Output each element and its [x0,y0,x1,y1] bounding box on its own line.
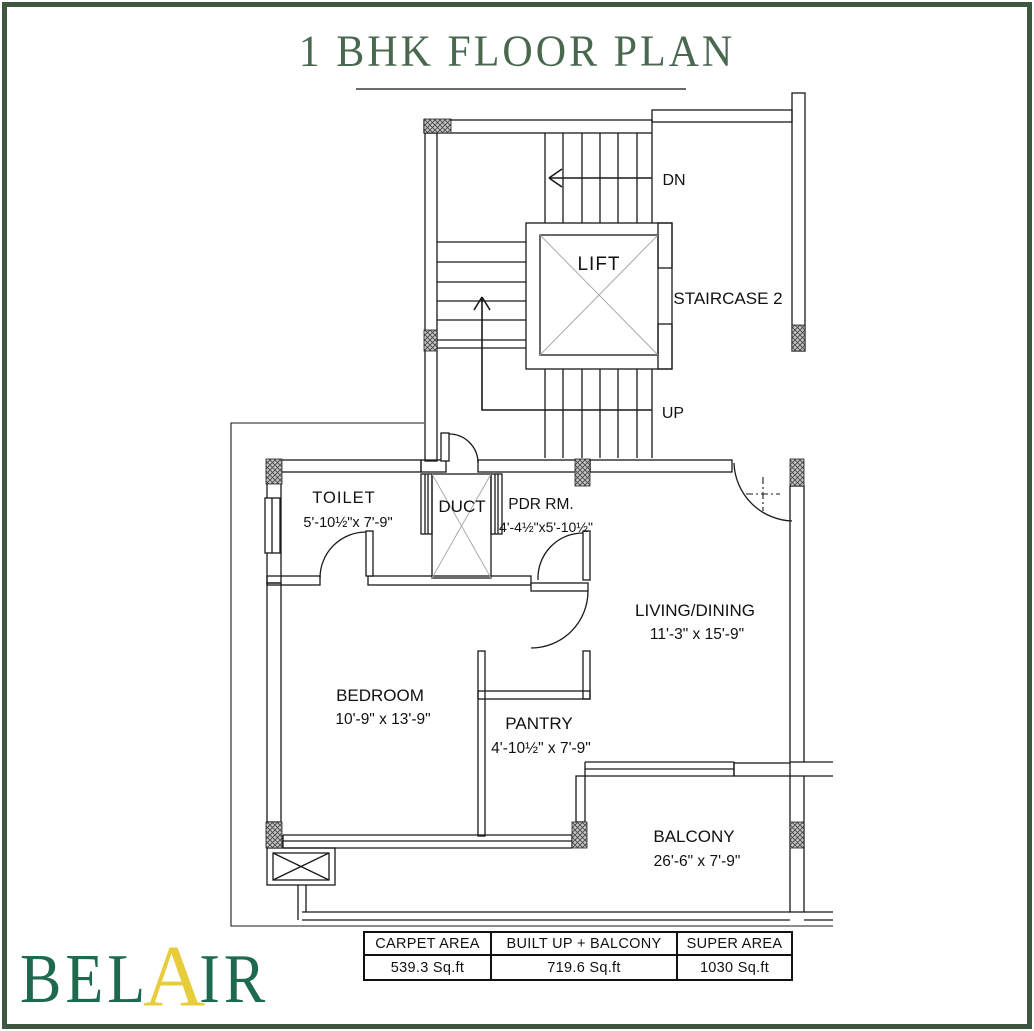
dim-bedroom: 10'-9" x 13'-9" [335,711,430,728]
label-pantry: PANTRY [505,714,572,733]
floor-plan-drawing: LIFT STAIRCASE 2 DN UP TOILET 5'-10½"x 7… [0,0,1034,1031]
dim-balcony: 26'-6" x 7'-9" [654,853,741,870]
dim-pantry: 4'-10½" x 7'-9" [491,740,591,757]
dim-toilet: 5'-10½"x 7'-9" [303,515,392,531]
label-toilet: TOILET [312,489,375,507]
logo-text-left: BEL [20,940,149,1020]
belair-logo: BEL A IR [20,925,269,1011]
door-centre-mark [746,477,780,511]
logo-accent-letter: A [143,925,205,1027]
label-lift: LIFT [577,254,620,275]
table-value-carpet-area: 539.3 Sq.ft [365,956,492,979]
label-pdr: PDR RM. [508,496,573,513]
area-summary-table: CARPET AREA BUILT UP + BALCONY SUPER ARE… [363,931,793,981]
label-dn: DN [662,172,685,189]
table-header-built-up: BUILT UP + BALCONY [492,933,678,956]
label-living: LIVING/DINING [635,601,755,620]
dim-pdr: 4'-4½"x5'-10½" [499,519,593,535]
table-value-built-up: 719.6 Sq.ft [492,956,678,979]
table-value-super-area: 1030 Sq.ft [678,956,791,979]
dim-living: 11'-3" x 15'-9" [650,626,744,643]
table-header-super-area: SUPER AREA [678,933,791,956]
label-staircase: STAIRCASE 2 [673,289,782,308]
label-balcony: BALCONY [653,827,734,846]
label-up: UP [662,405,684,422]
table-header-carpet-area: CARPET AREA [365,933,492,956]
label-bedroom: BEDROOM [336,686,424,705]
label-duct: DUCT [438,497,485,516]
column-hatches [266,119,805,848]
logo-text-right: IR [199,940,269,1020]
